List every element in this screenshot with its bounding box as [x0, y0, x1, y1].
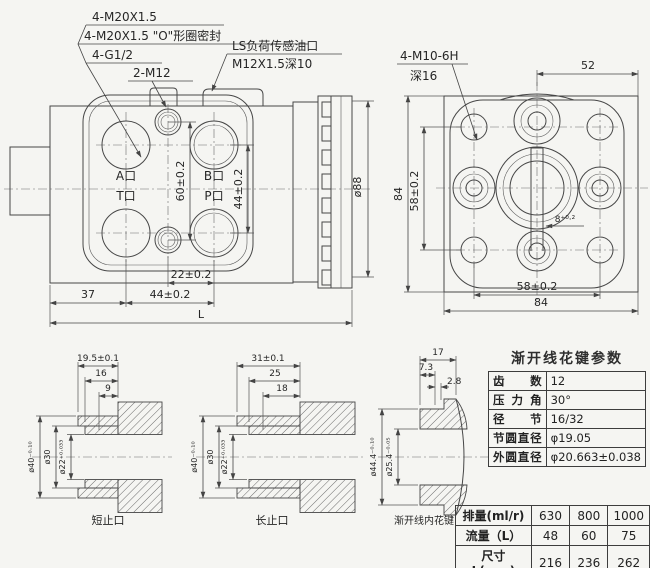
spline-parameter-table: 渐开线花键参数 齿数 12 压力角 30° 径节 16/32 节圆直径 φ19.… — [488, 348, 646, 467]
s2-dim-18: 18 — [276, 384, 288, 394]
port-p-label: P口 — [204, 189, 223, 203]
s2-caption: 长止口 — [256, 514, 289, 527]
s2-dia-40: ø40⁻⁰·¹⁰ — [190, 441, 199, 472]
dim-44-horizontal: 44±0.2 — [150, 288, 191, 301]
spline-label-pitch-diameter: 节圆直径 — [489, 429, 547, 448]
size-cell: 630 — [531, 506, 569, 526]
section-long-pilot: 31±0.1 25 18 ø40⁻⁰·¹⁰ ø30 ø22⁺⁰·⁰³³ 长止口 — [190, 354, 366, 527]
size-table-wrap: 排量(ml/r) 630 800 1000 流量（L） 48 60 75 尺寸L… — [455, 505, 650, 568]
section-short-pilot: 19.5±0.1 16 9 ø40⁻⁰·¹⁰ ø30 ø22⁺⁰·⁰³³ 短止口 — [27, 354, 172, 527]
s3-dim-17: 17 — [432, 348, 443, 358]
spline-label-outer-diameter: 外圆直径 — [489, 448, 547, 467]
spline-table: 齿数 12 压力角 30° 径节 16/32 节圆直径 φ19.05 外圆直径 … — [488, 371, 646, 467]
size-cell: 1000 — [608, 506, 650, 526]
s1-caption: 短止口 — [92, 513, 125, 527]
size-label-displacement: 排量(ml/r) — [456, 506, 532, 526]
dim-od88: ø88 — [351, 177, 364, 198]
size-label-length: 尺寸L(mm) — [456, 546, 532, 568]
dim-84-bottom: 84 — [534, 296, 548, 309]
dim-slot-width: 8⁺⁰·² — [555, 215, 576, 225]
size-row-length: 尺寸L(mm) 216 236 262 — [456, 546, 650, 568]
port-b-label: B口 — [204, 169, 224, 183]
callout-ls-port: LS负荷传感油口 — [232, 38, 318, 53]
s2-dia-22: ø22⁺⁰·⁰³³ — [220, 440, 229, 475]
size-cell: 800 — [570, 506, 608, 526]
size-cell: 48 — [531, 526, 569, 546]
size-cell: 236 — [570, 546, 608, 568]
s3-dia-44_4: ø44.4⁻⁰·¹⁰ — [369, 437, 378, 476]
ls-port-boss — [203, 89, 263, 106]
spline-value-pitch: 16/32 — [546, 410, 645, 429]
dim-52: 52 — [581, 59, 595, 72]
port-a-label: A口 — [116, 169, 136, 183]
callout-g12: 4-G1/2 — [92, 48, 133, 62]
engineering-drawing-page: A口 B口 T口 P口 60±0.2 44±0.2 ø88 22±0.2 37 … — [0, 0, 650, 568]
spline-row-pitch: 径节 16/32 — [489, 410, 646, 429]
spline-row-pressure-angle: 压力角 30° — [489, 391, 646, 410]
spline-label-pressure-angle: 压力角 — [489, 391, 547, 410]
spline-table-title: 渐开线花键参数 — [488, 348, 646, 368]
dim-60: 60±0.2 — [174, 161, 187, 202]
s2-dia-30: ø30 — [206, 449, 215, 464]
size-cell: 216 — [531, 546, 569, 568]
callout-m20: 4-M20X1.5 — [92, 10, 157, 24]
callout-m20-oring: 4-M20X1.5 "O"形圈密封 — [84, 28, 221, 43]
spline-value-pressure-angle: 30° — [546, 391, 645, 410]
spline-value-outer-diameter: φ20.663±0.038 — [546, 448, 645, 467]
spline-row-pitch-diameter: 节圆直径 φ19.05 — [489, 429, 646, 448]
s2-dim-31: 31±0.1 — [251, 354, 284, 364]
size-row-displacement: 排量(ml/r) 630 800 1000 — [456, 506, 650, 526]
spline-row-teeth: 齿数 12 — [489, 372, 646, 391]
callout-m10-depth: 深16 — [410, 69, 437, 83]
s3-dia-25_4: ø25.4⁻⁰·⁰⁵ — [385, 437, 394, 476]
size-label-flow: 流量（L） — [456, 526, 532, 546]
dim-22: 22±0.2 — [171, 268, 212, 281]
rear-view: 52 84 58±0.2 58±0.2 84 8⁺⁰·² 4-M10-6H 深1… — [392, 49, 648, 315]
s1-dia-30: ø30 — [43, 449, 52, 464]
dim-84-left: 84 — [392, 187, 405, 201]
dim-length-L: L — [198, 308, 205, 321]
spline-label-teeth: 齿数 — [489, 372, 547, 391]
dim-37: 37 — [81, 288, 95, 301]
section-spline-hub: 17 7.3 2.8 ø44.4⁻⁰·¹⁰ ø25.4⁻⁰·⁰⁵ 渐开线内花键 — [369, 348, 492, 527]
s1-dim-19_5: 19.5±0.1 — [77, 354, 119, 364]
spline-value-pitch-diameter: φ19.05 — [546, 429, 645, 448]
size-table: 排量(ml/r) 630 800 1000 流量（L） 48 60 75 尺寸L… — [455, 505, 650, 568]
size-cell: 262 — [608, 546, 650, 568]
dim-44-vertical: 44±0.2 — [232, 169, 245, 210]
port-t-label: T口 — [115, 189, 135, 203]
s1-dim-9: 9 — [105, 384, 111, 394]
spline-row-outer-diameter: 外圆直径 φ20.663±0.038 — [489, 448, 646, 467]
s1-dia-40: ø40⁻⁰·¹⁰ — [27, 441, 36, 472]
s1-dim-16: 16 — [95, 369, 107, 379]
front-view: A口 B口 T口 P口 60±0.2 44±0.2 ø88 22±0.2 37 … — [4, 88, 374, 327]
thread-callouts: 4-M20X1.5 4-M20X1.5 "O"形圈密封 4-G1/2 2-M12… — [78, 10, 342, 157]
s3-dim-2_8: 2.8 — [447, 377, 462, 387]
gerotor-ribs — [322, 102, 331, 285]
dim-58-bottom: 58±0.2 — [517, 280, 558, 293]
size-cell: 75 — [608, 526, 650, 546]
size-row-flow: 流量（L） 48 60 75 — [456, 526, 650, 546]
callout-m10: 4-M10-6H — [400, 49, 459, 63]
callout-ls-thread: M12X1.5深10 — [232, 57, 312, 71]
spline-label-pitch: 径节 — [489, 410, 547, 429]
s3-dim-7_3: 7.3 — [419, 363, 433, 373]
s3-caption: 渐开线内花键 — [394, 514, 454, 527]
s1-dia-22: ø22⁺⁰·⁰³³ — [58, 440, 67, 475]
spline-value-teeth: 12 — [546, 372, 645, 391]
s2-dim-25: 25 — [269, 369, 280, 379]
drawing-canvas: A口 B口 T口 P口 60±0.2 44±0.2 ø88 22±0.2 37 … — [0, 0, 650, 568]
callout-m12: 2-M12 — [133, 66, 171, 80]
dim-58-left: 58±0.2 — [408, 171, 421, 212]
size-cell: 60 — [570, 526, 608, 546]
